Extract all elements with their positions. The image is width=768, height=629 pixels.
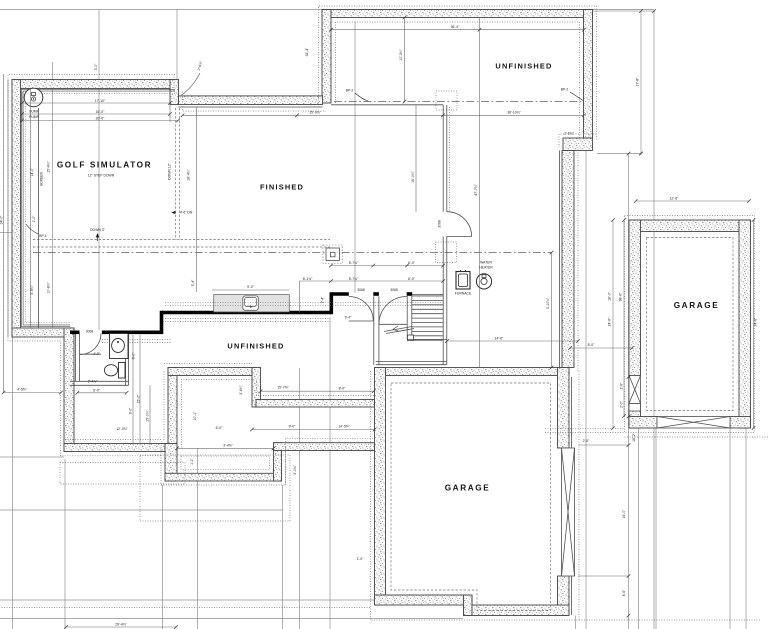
svg-text:BP-2: BP-2 — [346, 89, 354, 93]
svg-text:GARAGE: GARAGE — [674, 301, 720, 310]
svg-text:4'-0": 4'-0" — [93, 352, 101, 356]
svg-text:15'-7⅝": 15'-7⅝" — [277, 386, 289, 390]
svg-text:17'-10": 17'-10" — [95, 99, 106, 103]
svg-text:12" STEP DOWN: 12" STEP DOWN — [88, 174, 115, 178]
svg-text:34'-0": 34'-0" — [0, 215, 4, 224]
svg-text:6'-0": 6'-0" — [216, 426, 224, 430]
svg-text:HEATER: HEATER — [479, 266, 493, 270]
svg-text:36'-4": 36'-4" — [451, 25, 460, 29]
svg-text:9'-4": 9'-4" — [345, 316, 353, 320]
svg-text:29'-4¾": 29'-4¾" — [115, 623, 127, 627]
svg-text:10'-8¾": 10'-8¾" — [46, 281, 50, 293]
svg-text:BP-1: BP-1 — [39, 234, 47, 238]
svg-text:9'-0": 9'-0" — [289, 425, 297, 429]
svg-text:WATER: WATER — [480, 260, 492, 264]
svg-text:DOWN 12": DOWN 12" — [168, 162, 172, 179]
svg-text:2'-4⅞": 2'-4⅞" — [88, 380, 98, 384]
svg-text:SUMP: SUMP — [29, 110, 40, 114]
svg-text:5'-7¾": 5'-7¾" — [349, 277, 359, 281]
svg-text:GARAGE: GARAGE — [445, 484, 491, 493]
svg-text:14'-5⅝": 14'-5⅝" — [338, 425, 350, 429]
svg-text:20'-0": 20'-0" — [96, 116, 105, 120]
svg-text:24'-6": 24'-6" — [608, 317, 612, 326]
svg-text:36'-10¾": 36'-10¾" — [507, 110, 521, 114]
svg-text:3'-0⅝": 3'-0⅝" — [293, 464, 297, 474]
svg-text:15'-9¾": 15'-9¾" — [309, 111, 321, 115]
svg-text:6'-0": 6'-0" — [408, 261, 416, 265]
svg-text:1'-0": 1'-0" — [357, 557, 365, 561]
svg-text:18'-4¾": 18'-4¾" — [187, 168, 191, 180]
svg-text:12'-0¾": 12'-0¾" — [116, 427, 128, 431]
svg-text:3'-4⅝": 3'-4⅝" — [223, 444, 233, 448]
svg-text:GOLF SIMULATOR: GOLF SIMULATOR — [57, 161, 152, 170]
svg-text:16'-0": 16'-0" — [622, 509, 626, 518]
svg-text:2'-6": 2'-6" — [620, 382, 624, 390]
svg-text:2'-0": 2'-0" — [620, 400, 624, 408]
svg-text:15'-0": 15'-0" — [137, 394, 141, 403]
svg-text:32'-4": 32'-4" — [305, 47, 309, 56]
svg-text:3068: 3068 — [390, 288, 398, 292]
svg-text:10'-1": 10'-1" — [193, 411, 197, 420]
svg-text:4'-5⅝": 4'-5⅝" — [17, 388, 27, 392]
svg-text:18'-2": 18'-2" — [632, 432, 636, 441]
svg-text:3068: 3068 — [438, 220, 442, 228]
svg-text:18'-0": 18'-0" — [608, 291, 612, 300]
svg-text:3068: 3068 — [86, 329, 94, 333]
svg-text:5'-9¾": 5'-9¾" — [30, 284, 34, 294]
svg-text:3'-6¾": 3'-6¾" — [239, 384, 243, 394]
svg-text:3068: 3068 — [357, 288, 365, 292]
svg-text:FURNACE: FURNACE — [455, 291, 472, 295]
svg-text:10'-3¾": 10'-3¾" — [399, 48, 403, 60]
svg-text:9'-0": 9'-0" — [129, 407, 133, 415]
svg-text:PUMP: PUMP — [29, 115, 40, 119]
svg-text:2'-6¾": 2'-6¾" — [564, 132, 574, 136]
svg-text:5'-4": 5'-4" — [191, 279, 195, 287]
svg-text:4'-6": 4'-6" — [622, 589, 626, 597]
svg-text:6'-0": 6'-0" — [408, 277, 416, 281]
svg-text:8'-0": 8'-0" — [588, 343, 596, 347]
svg-text:3'-10¾": 3'-10¾" — [546, 297, 550, 309]
svg-text:4'-6" DN: 4'-6" DN — [180, 211, 193, 215]
svg-text:16'-0¾": 16'-0¾" — [411, 170, 415, 182]
svg-text:FINISHED: FINISHED — [260, 183, 304, 192]
svg-text:15'-0¾": 15'-0¾" — [146, 409, 150, 421]
svg-text:SCREEN: SCREEN — [40, 171, 44, 186]
svg-text:5'-7¾": 5'-7¾" — [349, 261, 359, 265]
svg-text:15'-4¾": 15'-4¾" — [46, 160, 50, 172]
svg-text:2'-0": 2'-0" — [583, 439, 591, 443]
svg-text:DOWN 3": DOWN 3" — [90, 228, 106, 232]
svg-text:UNFINISHED: UNFINISHED — [495, 62, 552, 71]
svg-text:38'-6": 38'-6" — [619, 292, 623, 301]
svg-text:16'-0": 16'-0" — [96, 110, 105, 114]
svg-text:14'-0": 14'-0" — [30, 167, 34, 176]
svg-text:1'-1": 1'-1" — [190, 457, 194, 465]
svg-text:14'-6": 14'-6" — [495, 337, 504, 341]
svg-text:12'-6": 12'-6" — [670, 197, 679, 201]
svg-text:9'-0": 9'-0" — [247, 285, 255, 289]
svg-text:17'-8": 17'-8" — [636, 77, 640, 86]
svg-text:47'-7¾": 47'-7¾" — [474, 183, 478, 195]
svg-text:2'-4": 2'-4" — [321, 296, 325, 304]
svg-text:8'-1¾": 8'-1¾" — [303, 277, 313, 281]
svg-text:UNFINISHED: UNFINISHED — [227, 342, 284, 351]
svg-text:8'-0": 8'-0" — [339, 387, 347, 391]
svg-text:8'-0": 8'-0" — [132, 352, 136, 360]
svg-text:6'-0": 6'-0" — [93, 388, 101, 392]
svg-text:24'-6": 24'-6" — [754, 317, 758, 326]
svg-text:1'-0": 1'-0" — [32, 215, 36, 223]
svg-text:3'-0": 3'-0" — [94, 63, 98, 71]
svg-text:BP-2: BP-2 — [561, 88, 569, 92]
